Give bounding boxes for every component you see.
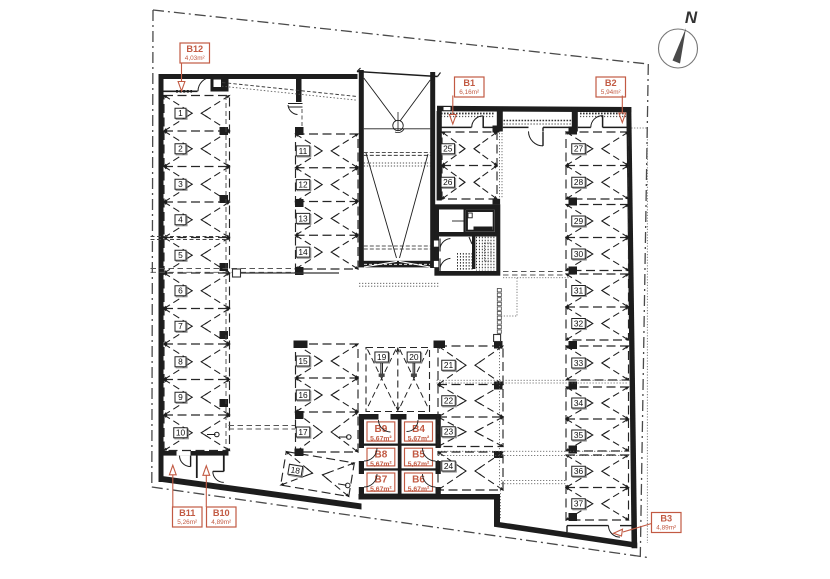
svg-text:B12: B12 — [186, 44, 203, 54]
svg-text:30: 30 — [574, 249, 584, 259]
svg-text:7: 7 — [178, 321, 183, 331]
svg-text:B5: B5 — [412, 450, 425, 461]
svg-text:32: 32 — [574, 318, 584, 328]
svg-text:36: 36 — [574, 466, 584, 476]
svg-text:13: 13 — [298, 213, 308, 223]
svg-text:10: 10 — [176, 428, 186, 438]
svg-text:5,67m²: 5,67m² — [408, 486, 430, 493]
svg-text:17: 17 — [298, 427, 308, 437]
svg-text:21: 21 — [444, 360, 454, 370]
svg-text:11: 11 — [299, 146, 308, 156]
svg-text:5,67m²: 5,67m² — [370, 486, 392, 493]
svg-text:B4: B4 — [412, 424, 425, 435]
svg-text:37: 37 — [574, 499, 584, 509]
svg-text:26: 26 — [443, 177, 453, 187]
svg-text:33: 33 — [574, 358, 584, 368]
svg-text:20: 20 — [409, 352, 419, 362]
svg-text:B11: B11 — [179, 508, 195, 518]
svg-text:23: 23 — [444, 427, 454, 437]
svg-text:5,67m²: 5,67m² — [370, 436, 392, 443]
svg-text:19: 19 — [377, 352, 387, 362]
svg-text:29: 29 — [574, 216, 584, 226]
svg-text:N: N — [685, 8, 698, 27]
svg-text:5,67m²: 5,67m² — [408, 461, 430, 468]
svg-text:25: 25 — [443, 144, 453, 154]
svg-text:3: 3 — [178, 179, 183, 189]
svg-text:B6: B6 — [412, 475, 425, 486]
svg-text:34: 34 — [574, 398, 584, 408]
svg-text:4: 4 — [178, 215, 183, 225]
svg-text:6: 6 — [178, 286, 183, 296]
svg-text:5,94m²: 5,94m² — [601, 89, 621, 96]
svg-text:B1: B1 — [463, 78, 475, 88]
svg-text:28: 28 — [574, 177, 584, 187]
svg-text:16: 16 — [298, 390, 308, 400]
svg-text:5: 5 — [178, 250, 183, 260]
svg-text:24: 24 — [444, 461, 454, 471]
svg-text:14: 14 — [298, 247, 308, 257]
svg-text:15: 15 — [298, 356, 308, 366]
svg-text:22: 22 — [444, 396, 454, 406]
svg-text:8: 8 — [178, 357, 183, 367]
svg-text:12: 12 — [298, 180, 308, 190]
svg-text:35: 35 — [574, 430, 584, 440]
svg-text:B2: B2 — [605, 78, 617, 88]
svg-text:B10: B10 — [213, 508, 230, 518]
svg-text:6,16m²: 6,16m² — [459, 89, 479, 96]
svg-text:5,67m²: 5,67m² — [370, 461, 392, 468]
svg-text:5,67m²: 5,67m² — [408, 436, 430, 443]
svg-text:4,89m²: 4,89m² — [211, 519, 231, 526]
svg-text:31: 31 — [574, 285, 584, 295]
svg-text:B3: B3 — [660, 514, 672, 524]
svg-text:B9: B9 — [375, 424, 388, 435]
svg-text:4,03m²: 4,03m² — [185, 55, 205, 62]
svg-text:4,89m²: 4,89m² — [656, 525, 676, 532]
svg-text:1: 1 — [178, 108, 183, 118]
svg-text:2: 2 — [178, 144, 183, 154]
svg-text:5,26m²: 5,26m² — [177, 519, 197, 526]
svg-text:9: 9 — [178, 392, 183, 402]
svg-text:27: 27 — [574, 144, 584, 154]
